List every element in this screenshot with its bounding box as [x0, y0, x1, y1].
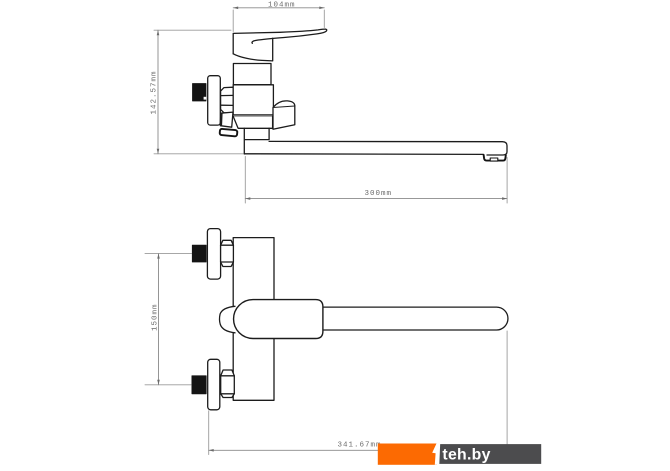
svg-text:teh.by: teh.by: [442, 447, 490, 464]
svg-text:341.67mm: 341.67mm: [338, 442, 382, 450]
svg-text:150mm: 150mm: [152, 303, 160, 331]
svg-text:142.57mm: 142.57mm: [151, 70, 159, 114]
svg-text:104mm: 104mm: [268, 1, 296, 9]
svg-text:300mm: 300mm: [365, 190, 393, 198]
